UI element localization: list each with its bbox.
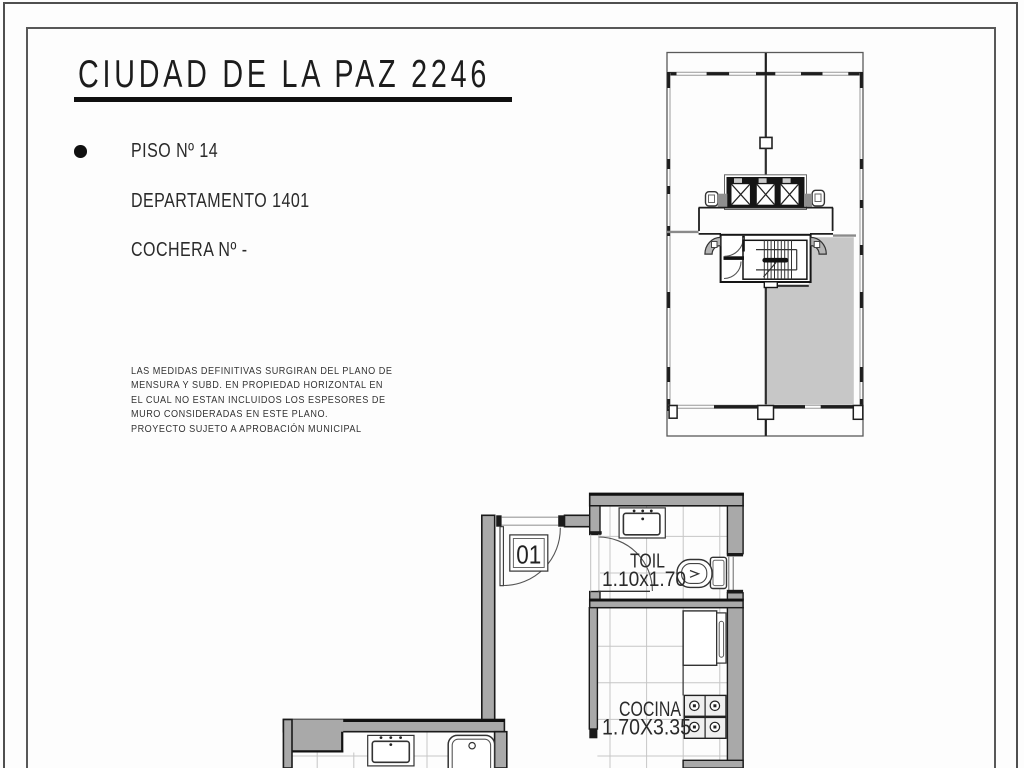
svg-text:01: 01 (516, 540, 541, 570)
svg-text:1.10x1.70: 1.10x1.70 (602, 568, 686, 591)
svg-text:1.70X3.35: 1.70X3.35 (602, 715, 691, 740)
